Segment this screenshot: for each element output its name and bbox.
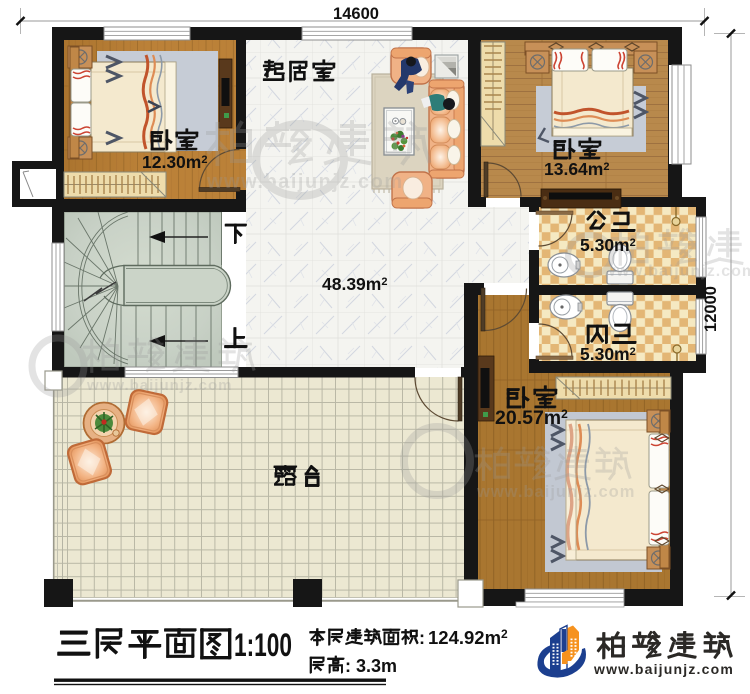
svg-text:www.baijunjz.com: www.baijunjz.com [602, 263, 750, 280]
svg-text:www.baijunjz.com: www.baijunjz.com [476, 483, 635, 501]
svg-text:48.39m2: 48.39m2 [322, 274, 387, 294]
svg-text:5.30m2: 5.30m2 [580, 344, 636, 364]
svg-text:www.baijunjz.com: www.baijunjz.com [206, 171, 404, 193]
svg-text:www.baijunjz.com: www.baijunjz.com [86, 377, 232, 394]
svg-text:13.64m2: 13.64m2 [544, 159, 609, 179]
svg-text:12000: 12000 [702, 286, 720, 332]
svg-text::: : [419, 628, 425, 648]
svg-text:12.30m2: 12.30m2 [142, 152, 207, 172]
svg-text:1:100: 1:100 [234, 627, 292, 663]
svg-text:20.57m2: 20.57m2 [495, 407, 568, 429]
svg-text:: 3.3m: : 3.3m [345, 656, 397, 676]
svg-text:5.30m2: 5.30m2 [580, 235, 636, 255]
svg-text:www.baijunjz.com: www.baijunjz.com [593, 661, 734, 677]
svg-text:14600: 14600 [333, 5, 379, 23]
svg-text:124.92m2: 124.92m2 [428, 627, 508, 648]
